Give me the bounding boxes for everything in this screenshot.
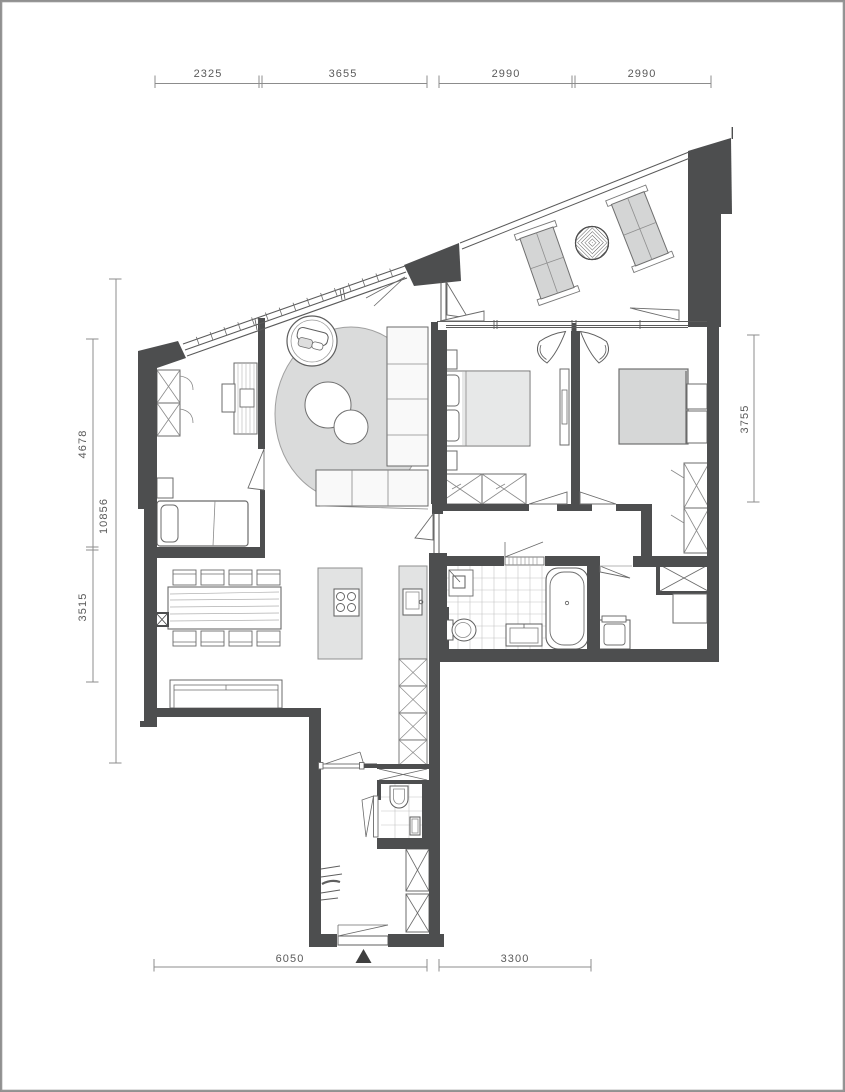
svg-text:3655: 3655 [329, 68, 358, 80]
svg-text:3515: 3515 [77, 593, 89, 622]
svg-text:6050: 6050 [276, 953, 305, 965]
svg-text:4678: 4678 [77, 430, 89, 459]
svg-text:2990: 2990 [492, 68, 521, 80]
svg-text:3755: 3755 [739, 405, 751, 434]
svg-text:10856: 10856 [98, 498, 110, 534]
svg-text:3300: 3300 [501, 953, 530, 965]
svg-text:2990: 2990 [628, 68, 657, 80]
svg-text:2325: 2325 [194, 68, 223, 80]
